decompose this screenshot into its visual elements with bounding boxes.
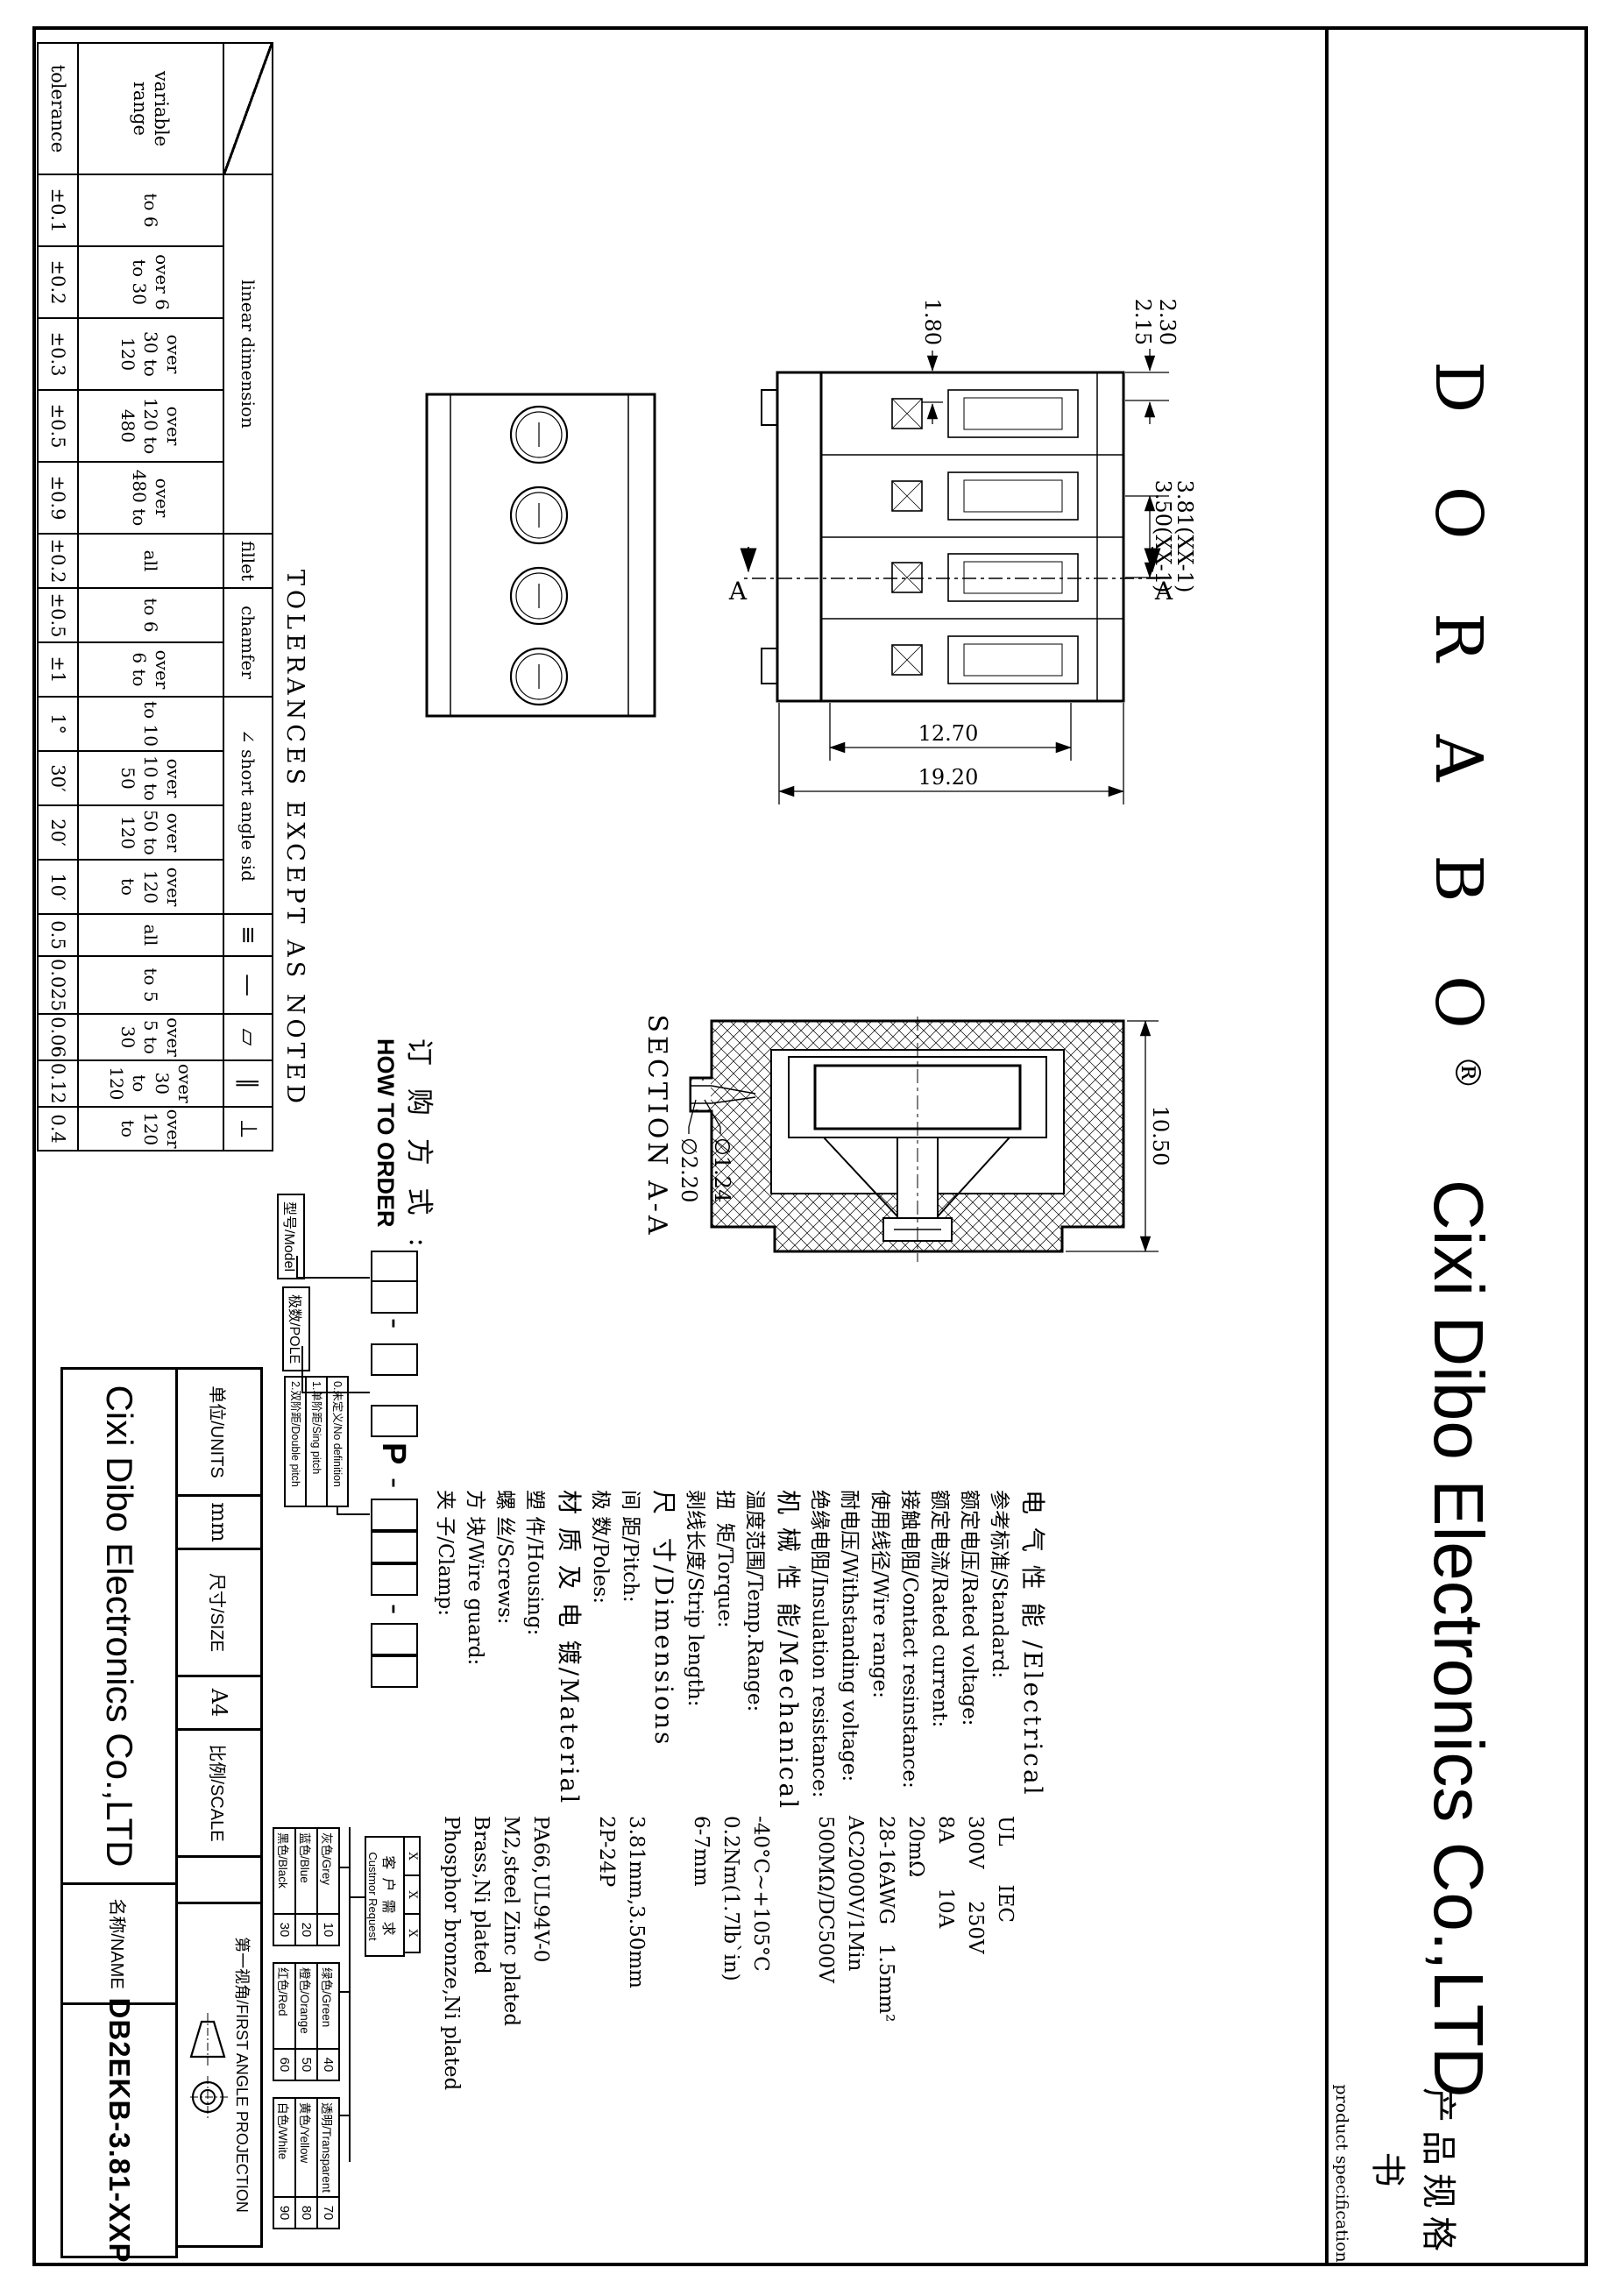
table-row: 红色/Red60 <box>273 1963 295 2080</box>
spec-label: 机 械 性 能/Mechanical <box>772 1490 807 1816</box>
spec-label: 夹 子/Clamp: <box>433 1490 463 1816</box>
range-cell: over 30 to 120 <box>78 1060 223 1107</box>
order-model-cell <box>372 1252 416 1282</box>
order-box <box>371 1499 418 1531</box>
projection-label: 第一视角/FIRST ANGLE PROJECTION <box>231 1937 254 2213</box>
leader-line <box>340 1991 351 1993</box>
dim-1920: 19.20 <box>918 765 979 790</box>
color-name: 黄色/Yellow <box>295 2098 317 2197</box>
order-model-box <box>371 1251 418 1314</box>
tolerance-group-header: linear dimension <box>223 174 273 534</box>
table-row: 透明/Transparent70 <box>317 2098 339 2229</box>
table-row: linear dimensionfilletchamfer∠ short ang… <box>223 43 273 1151</box>
table-row: 绿色/Green40 <box>317 1963 339 2080</box>
order-title: 订 购 方 式 : HOW TO ORDER <box>372 1038 442 1254</box>
section-caption: SECTION A-A <box>641 1014 672 1237</box>
size-label: 尺寸/SIZE <box>207 1573 232 1652</box>
range-cell: over 120 to <box>78 1107 223 1152</box>
range-cell: over 30 to 120 <box>78 318 223 390</box>
spec-value: UL IEC <box>987 1816 1017 1923</box>
color-code: 40 <box>317 2049 339 2080</box>
spec-value: 0.2Nm(1.7lb`in) <box>712 1816 742 1981</box>
spec-line: 扭 矩/Torque:0.2Nm(1.7lb`in) <box>712 1490 742 2033</box>
color-table: 灰色/Grey10蓝色/Blue20黑色/Black30 <box>273 1827 340 1946</box>
order-dash: - <box>379 1478 410 1488</box>
tolerance-cell: ±0.2 <box>38 534 78 588</box>
company-title: Cixi Dibo Electronics Co.,LTD <box>98 1385 140 1867</box>
spec-label: 温度范围/Temp.Range: <box>742 1490 772 1816</box>
tolerance-cell: 30′ <box>38 751 78 805</box>
range-cell: over 480 to <box>78 462 223 534</box>
dim-1270: 12.70 <box>918 721 979 746</box>
section-view <box>689 1017 1159 1262</box>
drawing-sheet: D O R A B O® Cixi Dibo Electronics Co.,L… <box>0 0 1623 2296</box>
spec-line: 额定电流/Rated current:8A 10A <box>927 1490 957 2033</box>
tolerance-row-label: tolerance <box>38 43 78 174</box>
range-cell: over 120 to 480 <box>78 390 223 462</box>
spec-line: 极 数/Poles:2P-24P <box>588 1490 618 2033</box>
spec-section-header: 电 气 性 能 /Electrical <box>1017 1490 1052 2033</box>
spec-line: 耐电压/Withstanding voltage:AC2000V/1Min <box>837 1490 867 2033</box>
color-name: 灰色/Grey <box>317 1828 339 1914</box>
scale-label: 比例/SCALE <box>207 1744 232 1841</box>
color-table: 绿色/Green40橙色/Orange50红色/Red60 <box>273 1962 340 2081</box>
color-name: 红色/Red <box>273 1963 295 2049</box>
table-row: 灰色/Grey10 <box>317 1828 339 1945</box>
color-name: 蓝色/Blue <box>295 1828 317 1914</box>
tolerance-group-header: ∠ short angle sid <box>223 697 273 914</box>
spec-line: 参考标准/Standard:UL IEC <box>987 1490 1017 2033</box>
order-box <box>371 1655 418 1688</box>
order-title-cn: 订 购 方 式 : <box>402 1038 442 1254</box>
customer-request-box: 客 户 需 求 Custmor Request <box>365 1836 405 1957</box>
color-code: 20 <box>295 1914 317 1945</box>
order-dash: - <box>379 1604 410 1614</box>
spec-label: 额定电压/Rated voltage: <box>957 1490 987 1816</box>
range-row-label: variable range <box>78 43 223 174</box>
dim-230: 2.30 <box>1155 299 1180 345</box>
color-tables: 灰色/Grey10蓝色/Blue20黑色/Black30绿色/Green40橙色… <box>273 1827 340 2229</box>
dim-215: 2.15 <box>1130 299 1155 345</box>
tolerance-cell: 20′ <box>38 805 78 860</box>
size-value: A4 <box>207 1689 231 1718</box>
tolerance-cell: 0.06 <box>38 1014 78 1060</box>
spec-label: 极 数/Poles: <box>588 1490 618 1816</box>
color-code: 30 <box>273 1914 295 1945</box>
tolerance-cell: 0.4 <box>38 1107 78 1152</box>
color-code: 90 <box>273 2197 295 2229</box>
order-box <box>371 1623 418 1655</box>
spec-label: 电 气 性 能 /Electrical <box>1017 1490 1052 1816</box>
spec-value: 28-16AWG 1.5mm² <box>868 1816 897 2022</box>
leader-line <box>296 1277 370 1279</box>
color-name: 透明/Transparent <box>317 2098 339 2197</box>
spec-line: 夹 子/Clamp:Phosphor bronze,Ni plated <box>433 1490 463 2033</box>
spec-line: 螺 丝/Screws:M2,steel Zinc plated <box>493 1490 522 2033</box>
tolerance-cell: 0.025 <box>38 956 78 1014</box>
model-label: 型号/Model <box>277 1194 305 1279</box>
table-row: 橙色/Orange50 <box>295 1963 317 2080</box>
leader-line <box>301 1392 370 1393</box>
spec-value: PA66,UL94V-0 <box>523 1816 553 1962</box>
table-row: 蓝色/Blue20 <box>295 1828 317 1945</box>
color-code: 50 <box>295 2049 317 2080</box>
pitch-option: 2.双阶距/Double pitch <box>286 1378 307 1506</box>
section-letter-top: A <box>1154 577 1173 606</box>
pitch-option: 1.单阶距/Sing pitch <box>307 1378 328 1506</box>
spec-value: 20mΩ <box>897 1816 927 1877</box>
range-cell: to 10 <box>78 697 223 751</box>
tolerance-cell: 0.5 <box>38 914 78 956</box>
spec-label: 使用线径/Wire range: <box>868 1490 897 1816</box>
spec-label: 间 距/Pitch: <box>618 1490 648 1816</box>
leader-line <box>340 2115 351 2116</box>
table-row: 黑色/Black30 <box>273 1828 295 1945</box>
title-block-bottom-row: Cixi Dibo Electronics Co.,LTD 名称/NAME DB… <box>60 1367 178 2258</box>
title-block: 单位/UNITS mm 尺寸/SIZE A4 比例/SCALE 第一视角/FIR… <box>60 1367 263 2258</box>
tolerance-note: TOLERANCES EXCEPT AS NOTED <box>281 570 308 1108</box>
spec-label: 额定电流/Rated current: <box>927 1490 957 1816</box>
x-cell: X <box>403 1836 421 1876</box>
color-code: 60 <box>273 2049 295 2080</box>
units-label: 单位/UNITS <box>207 1385 232 1478</box>
range-cell: all <box>78 534 223 588</box>
tolerance-group-header: ∥ <box>223 1060 273 1107</box>
spec-value: Brass,Ni plated <box>463 1816 493 1974</box>
spec-line: 温度范围/Temp.Range:-40°C~+105°C <box>742 1490 772 2033</box>
page: D O R A B O® Cixi Dibo Electronics Co.,L… <box>0 0 1623 2296</box>
spec-block: 电 气 性 能 /Electrical参考标准/Standard:UL IEC额… <box>433 1490 1052 2033</box>
part-number: DB2EKB-3.81-XXP <box>103 1998 136 2264</box>
spec-line: 剥线长度/Strip length:6-7mm <box>683 1490 712 2033</box>
color-name: 白色/White <box>273 2098 295 2197</box>
dim-dia-124: ∅1.24 <box>710 1137 734 1202</box>
section-letter-bottom: A <box>728 577 748 606</box>
spec-value: 500MΩ/DC500V <box>807 1816 837 1983</box>
spec-line: 绝缘电阻/Insulation resistance:500MΩ/DC500V <box>807 1490 837 2033</box>
spec-value: M2,steel Zinc plated <box>493 1816 522 2026</box>
tolerance-group-header: — <box>223 956 273 1014</box>
tolerance-cell: ±0.1 <box>38 174 78 246</box>
x-mark-row: XXX <box>403 1836 421 1953</box>
tolerance-table: linear dimensionfilletchamfer∠ short ang… <box>37 42 273 1152</box>
spec-value: AC2000V/1Min <box>837 1816 867 1971</box>
spec-label: 尺 寸/Dimensions <box>648 1490 683 1816</box>
spec-value: 8A 10A <box>927 1816 957 1928</box>
tolerance-cell: 10′ <box>38 860 78 914</box>
tolerance-group-header: fillet <box>223 534 273 588</box>
range-cell: to 6 <box>78 588 223 642</box>
range-cell: over 120 to <box>78 860 223 914</box>
range-cell: over 5 to 30 <box>78 1014 223 1060</box>
order-dash: - <box>379 1318 410 1329</box>
name-label: 名称/NAME <box>107 1898 132 1988</box>
tolerance-cell: ±0.9 <box>38 462 78 534</box>
spec-label: 剥线长度/Strip length: <box>683 1490 712 1816</box>
tolerance-table-corner <box>223 43 273 174</box>
tolerance-group-header: chamfer <box>223 588 273 697</box>
x-cell: X <box>403 1874 421 1915</box>
tolerance-cell: ±0.2 <box>38 246 78 318</box>
spec-value: 3.81mm,3.50mm <box>618 1816 648 1988</box>
tolerance-cell: ±0.3 <box>38 318 78 390</box>
range-cell: over 6 to 30 <box>78 246 223 318</box>
spec-line: 接触电阻/Contact resinstance:20mΩ <box>897 1490 927 2033</box>
first-angle-projection-icon <box>184 2009 231 2141</box>
pitch-options-box: 0.未定义/No definition1.单阶距/Sing pitch2.双阶距… <box>284 1376 349 1507</box>
customer-request-cn: 客 户 需 求 <box>379 1838 400 1955</box>
color-code: 10 <box>317 1914 339 1945</box>
spec-value: 300V 250V <box>957 1816 987 1954</box>
tolerance-group-header: ▱ <box>223 1014 273 1060</box>
title-block-top-row: 单位/UNITS mm 尺寸/SIZE A4 比例/SCALE 第一视角/FIR… <box>175 1367 263 2258</box>
spec-value: Phosphor bronze,Ni plated <box>433 1816 463 2090</box>
order-letter-p: P <box>374 1442 412 1464</box>
leader-line <box>296 1256 298 1279</box>
tolerance-cell: 1° <box>38 697 78 751</box>
pole-label: 极数/POLE <box>282 1286 310 1371</box>
color-code: 80 <box>295 2197 317 2229</box>
spec-line: 塑 件/Housing:PA66,UL94V-0 <box>523 1490 553 2033</box>
spec-value: 2P-24P <box>588 1816 618 1887</box>
spec-value: 6-7mm <box>683 1816 712 1887</box>
leader-line <box>340 1867 351 1868</box>
customer-request-en: Custmor Request <box>366 1838 379 1955</box>
order-title-en: HOW TO ORDER <box>372 1038 399 1254</box>
spec-section-header: 尺 寸/Dimensions <box>648 1490 683 2033</box>
order-box <box>371 1531 418 1563</box>
spec-section-header: 机 械 性 能/Mechanical <box>772 1490 807 2033</box>
units-value: mm <box>207 1502 231 1542</box>
color-table: 透明/Transparent70黄色/Yellow80白色/White90 <box>273 2097 340 2229</box>
spec-label: 螺 丝/Screws: <box>493 1490 522 1816</box>
color-name: 橙色/Orange <box>295 1963 317 2049</box>
tolerance-cell: ±0.5 <box>38 588 78 642</box>
order-box <box>371 1563 418 1596</box>
dim-1050: 10.50 <box>1148 1106 1173 1166</box>
spec-label: 耐电压/Withstanding voltage: <box>837 1490 867 1816</box>
tolerance-cell: ±0.5 <box>38 390 78 462</box>
tolerance-cell: ±1 <box>38 642 78 697</box>
pitch-option: 0.未定义/No definition <box>328 1378 347 1506</box>
tolerance-group-header: ≡ <box>223 914 273 956</box>
spec-label: 方 块/Wire guard: <box>463 1490 493 1816</box>
order-box <box>371 1405 418 1437</box>
spec-label: 材 质 及 电 镀/Material <box>553 1490 588 1816</box>
color-code: 70 <box>317 2197 339 2229</box>
range-cell: all <box>78 914 223 956</box>
spec-label: 塑 件/Housing: <box>523 1490 553 1816</box>
dim-dia-220: ∅2.20 <box>677 1137 701 1202</box>
table-row: 白色/White90 <box>273 2098 295 2229</box>
table-row: variable rangeto 6over 6 to 30over 30 to… <box>78 43 223 1151</box>
spec-label: 绝缘电阻/Insulation resistance: <box>807 1490 837 1816</box>
range-cell: over 6 to <box>78 642 223 697</box>
spec-line: 使用线径/Wire range:28-16AWG 1.5mm² <box>868 1490 897 2033</box>
leader-line <box>349 1827 351 2162</box>
tolerance-cell: 0.12 <box>38 1060 78 1107</box>
front-view <box>427 394 655 716</box>
range-cell: to 6 <box>78 174 223 246</box>
spec-value: -40°C~+105°C <box>742 1816 772 1972</box>
leader-line <box>349 1896 365 1898</box>
tolerance-group-header: ⊥ <box>223 1107 273 1152</box>
spec-label: 接触电阻/Contact resinstance: <box>897 1490 927 1816</box>
dim-pitch-381: 3.81(XX-1) <box>1173 480 1197 593</box>
spec-line: 额定电压/Rated voltage:300V 250V <box>957 1490 987 2033</box>
spec-line: 间 距/Pitch:3.81mm,3.50mm <box>618 1490 648 2033</box>
range-cell: to 5 <box>78 956 223 1014</box>
color-name: 绿色/Green <box>317 1963 339 2049</box>
leader-line <box>337 1507 338 1515</box>
table-row: 黄色/Yellow80 <box>295 2098 317 2229</box>
spec-label: 扭 矩/Torque: <box>712 1490 742 1816</box>
x-cell: X <box>403 1913 421 1953</box>
range-cell: over 50 to 120 <box>78 805 223 860</box>
order-box <box>371 1343 418 1376</box>
color-name: 黑色/Black <box>273 1828 295 1914</box>
leader-line <box>301 1346 303 1393</box>
range-cell: over 10 to 50 <box>78 751 223 805</box>
spec-line: 方 块/Wire guard:Brass,Ni plated <box>463 1490 493 2033</box>
table-row: tolerance±0.1±0.2±0.3±0.5±0.9±0.2±0.5±11… <box>38 43 78 1151</box>
dim-180: 1.80 <box>920 299 945 345</box>
spec-section-header: 材 质 及 电 镀/Material <box>553 1490 588 2033</box>
spec-label: 参考标准/Standard: <box>987 1490 1017 1816</box>
leader-line <box>337 1513 370 1515</box>
